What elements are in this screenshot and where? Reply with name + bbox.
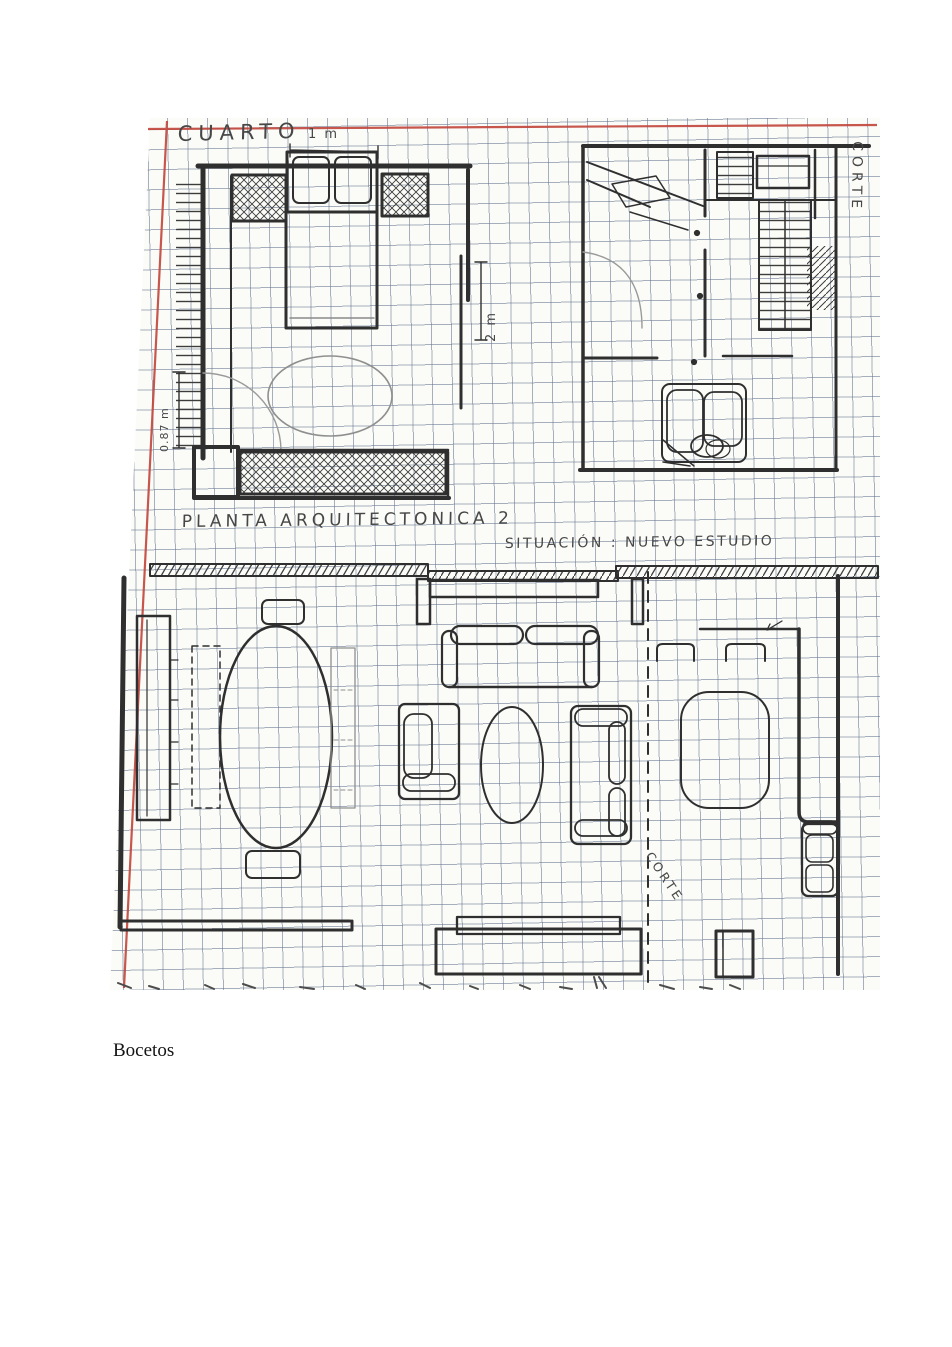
closet xyxy=(757,156,809,188)
rug xyxy=(268,356,392,436)
stairs-hatch xyxy=(807,246,835,310)
wall-pier xyxy=(632,579,643,624)
cutoff-pencil-marks xyxy=(118,977,740,989)
chair xyxy=(726,644,765,661)
door-swing-arc xyxy=(583,252,642,328)
studio-plan xyxy=(120,564,878,986)
wall-pier xyxy=(417,579,430,624)
living-area xyxy=(399,579,643,844)
wall-console xyxy=(430,580,598,597)
ramp-sketch xyxy=(587,162,703,230)
bottom-console xyxy=(436,917,641,974)
closet-wall xyxy=(799,629,836,822)
wall-hatching xyxy=(176,180,202,452)
sofa-large xyxy=(442,626,599,687)
chair xyxy=(246,851,300,878)
door-knob-dot xyxy=(691,359,696,364)
floor-box xyxy=(716,931,753,977)
left-wall xyxy=(120,578,124,927)
dining-table xyxy=(220,626,332,848)
dining-area xyxy=(137,600,355,878)
dimension-label-2m: 2 m xyxy=(484,311,499,342)
coffee-table xyxy=(481,707,543,823)
area-rug xyxy=(681,692,769,808)
cabinet-light xyxy=(331,648,355,808)
figure-caption: Bocetos xyxy=(113,1040,174,1062)
dimension-label-1m: 1 m xyxy=(308,127,339,142)
right-room xyxy=(657,621,838,977)
armchair-sketch xyxy=(662,384,746,466)
bedroom-plan xyxy=(173,144,487,498)
cabinet-dashed xyxy=(192,646,220,808)
red-left-margin-line xyxy=(124,121,167,988)
door-swing-arc xyxy=(203,373,281,450)
door-knob-dot xyxy=(697,293,702,298)
door-knob-dot xyxy=(694,230,699,235)
bed xyxy=(286,152,377,328)
small-armchair xyxy=(802,821,838,896)
floorplan-sketch-drawing xyxy=(0,0,952,1347)
stairs-plan xyxy=(580,146,869,470)
top-hatched-wall xyxy=(150,564,878,581)
bottom-wall xyxy=(121,921,352,930)
window-left xyxy=(232,175,286,221)
upper-stairs xyxy=(717,152,753,198)
bottom-window-band xyxy=(194,447,449,498)
sofa-small xyxy=(571,706,631,844)
situation-title: SITUACIÓN : NUEVO ESTUDIO xyxy=(505,533,775,552)
room-label: CUARTO xyxy=(177,119,300,146)
chair xyxy=(262,600,304,624)
window-right xyxy=(382,174,428,216)
plan-title: PLANTA ARQUITECTONICA 2 xyxy=(182,509,514,532)
armchair xyxy=(399,704,459,799)
chair xyxy=(657,644,694,661)
section-label-vertical: CORTE xyxy=(848,141,865,213)
dimension-label-087m: 0.87 m xyxy=(158,407,171,452)
